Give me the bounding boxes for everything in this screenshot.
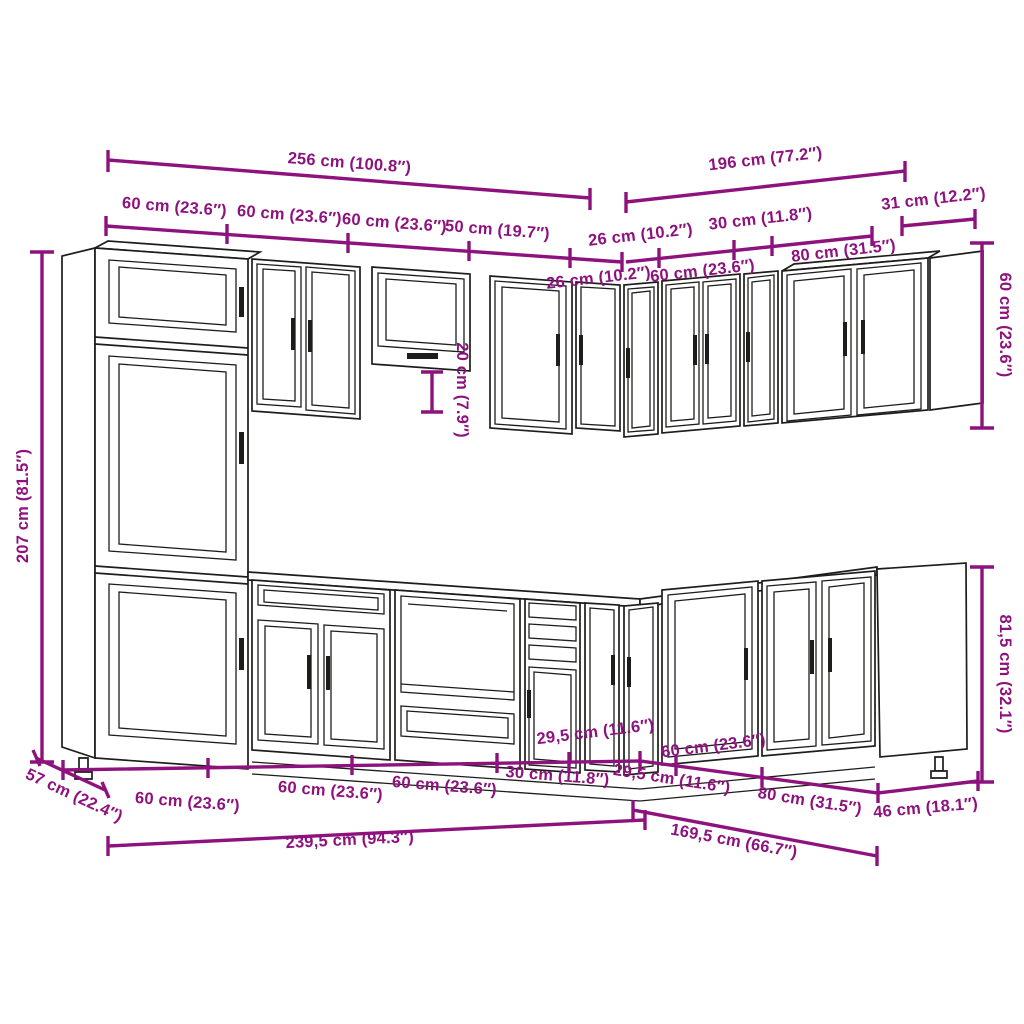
dim-label-wall-26-a: 26 cm (10.2″) [587,220,693,250]
dim-label-wall-60-c: 60 cm (23.6″) [341,210,447,236]
dim-label-base-46: 46 cm (18.1″) [872,794,978,821]
tall-cabinet [62,241,260,779]
wall-cabinet-right-80-double [782,251,940,423]
dim-label-total-top-right: 196 cm (77.2″) [708,144,824,175]
base-cabinet-30-drawers [525,599,580,773]
cabinet-linework [62,241,983,801]
base-cabinet-corner-doors [585,603,658,775]
dim-label-wall-60-a: 60 cm (23.6″) [121,194,227,220]
dim-label-gap-hood: 20 cm (7.9″) [453,342,471,438]
diagram-canvas: 256 cm (100.8″) 196 cm (77.2″) 60 cm (23… [0,0,1024,1024]
dim-label-height-tall: 207 cm (81.5″) [14,449,32,563]
dim-label-wall-30: 30 cm (11.8″) [708,204,813,233]
wall-cabinet-corner-26 [576,282,620,431]
dim-label-wall-31: 31 cm (12.2″) [880,184,986,214]
dim-label-total-bottom-left: 239,5 cm (94.3″) [285,828,414,852]
dim-label-base-60-c: 60 cm (23.6″) [391,773,497,799]
dim-label-base-60-a: 60 cm (23.6″) [134,789,240,815]
dim-label-height-base: 81,5 cm (32.1″) [996,614,1014,733]
base-cabinet-60-drawer [252,580,390,760]
dim-label-height-wall: 60 cm (23.6″) [996,273,1014,378]
dim-label-total-bottom-right: 169,5 cm (66.7″) [669,821,799,862]
dim-label-wall-50: 50 cm (19.7″) [444,217,550,243]
base-cabinet-right-80 [762,571,875,756]
wall-cabinet-right-26 [624,282,658,437]
wall-cabinet-right-60-double [662,274,740,433]
wall-cabinet-60-double [252,259,360,419]
dim-label-total-top-left: 256 cm (100.8″) [287,149,412,177]
wall-cabinet-end-panel [930,251,983,410]
kitchen-dimension-diagram: 256 cm (100.8″) 196 cm (77.2″) 60 cm (23… [0,0,1024,1024]
base-end-panel [877,563,967,778]
wall-cabinet-right-30 [744,271,778,426]
base-cabinet-oven-60 [395,590,520,769]
dim-label-wall-60-b: 60 cm (23.6″) [236,202,342,228]
wall-cabinet-50 [490,276,572,434]
